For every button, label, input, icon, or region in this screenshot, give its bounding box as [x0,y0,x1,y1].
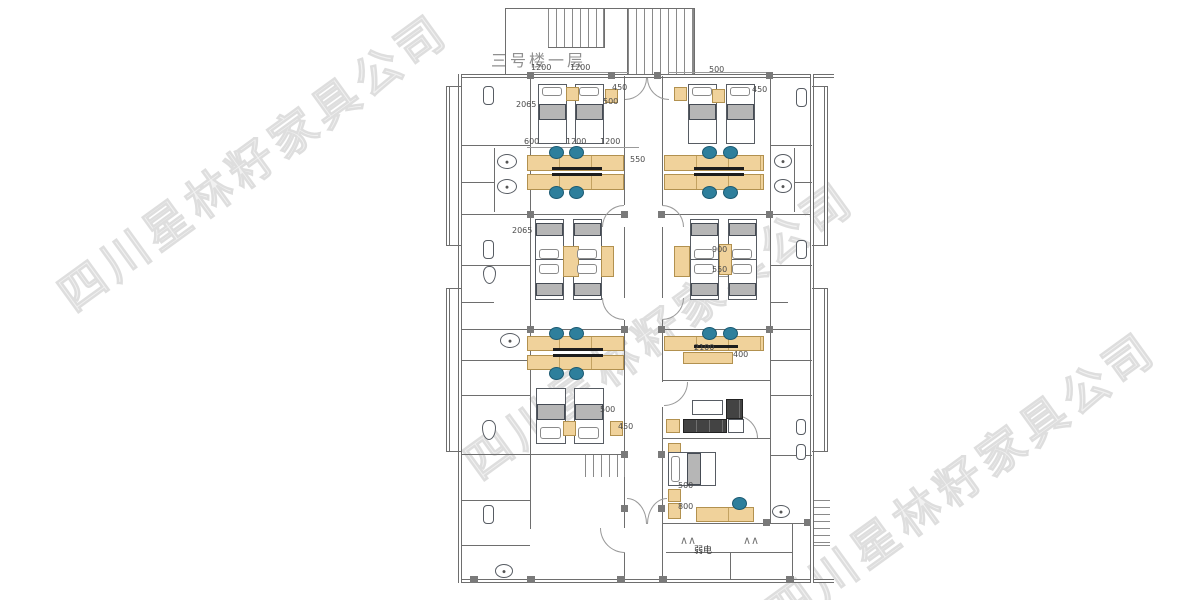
plan-wall-h [462,545,530,546]
plan-pillow [542,87,562,96]
plan-wall-v [730,552,731,580]
plan-dwall-v [446,86,450,246]
plan-band [729,223,756,236]
plan-pillow [732,264,752,274]
plan-band [536,283,563,296]
plan-chair [569,146,584,159]
dim-label: 800 [678,503,693,511]
plan-col [766,72,773,79]
vent-symbol: ∧∧ [743,535,759,546]
plan-cab [674,87,687,101]
plan-wall-h [812,451,828,452]
plan-sink [772,505,790,518]
dim-label: 500 [709,66,724,74]
plan-col [658,211,665,218]
plan-arc-tr [600,528,625,553]
plan-mon [694,167,744,170]
dim-label: 450 [612,84,627,92]
plan-fixture [796,444,806,460]
dim-label: 900 [712,246,727,254]
floor-plan: 三号楼一层 四川星林籽家具公司四川星林籽家具公司四川星林籽家具公司1200120… [0,0,1200,600]
plan-mon [552,173,602,176]
dim-label: 500 [600,406,615,414]
plan-band [729,283,756,296]
plan-wall-h [662,214,810,215]
plan-wall-v [494,148,495,212]
dim-label: 1200 [570,64,590,72]
plan-band [537,404,565,420]
room-label-weak-current: 弱电 [694,547,712,556]
plan-fixture [796,419,806,435]
plan-wall-h [812,86,828,87]
plan-col [608,72,615,79]
plan-pillow [540,427,561,439]
plan-sink [774,179,792,193]
plan-sofa [683,419,727,433]
plan-wall-v [794,148,795,212]
vent-symbol: ∧∧ [680,535,696,546]
plan-wall-v [792,523,793,580]
plan-band [691,223,718,236]
plan-wall-v [662,407,663,580]
plan-stairs-v [548,9,604,47]
plan-wall-h [662,438,770,439]
dim-label: 450 [752,86,767,94]
plan-chair [549,146,564,159]
plan-col [804,519,811,526]
plan-arc-tl [625,78,647,100]
plan-col [659,576,667,583]
plan-dwall-v [824,86,828,246]
floor-plan-canvas: 三号楼一层 四川星林籽家具公司四川星林籽家具公司四川星林籽家具公司1200120… [0,0,1200,600]
plan-sink [500,333,520,348]
plan-wall-h [666,552,792,553]
plan-cab [563,421,576,436]
plan-table-w [692,400,723,415]
plan-col [766,326,773,333]
plan-wall-v [694,8,695,76]
plan-arc-tr [647,78,669,100]
plan-stairs-v [628,9,694,75]
plan-band [575,404,603,420]
plan-sink [497,179,517,194]
plan-wall-h [770,360,812,361]
plan-col [621,451,628,458]
plan-dwall-v [446,288,450,452]
plan-band [689,104,716,120]
plan-wall-h [770,395,812,396]
plan-wall-h [446,451,462,452]
plan-pillow [671,456,680,482]
plan-col [527,576,535,583]
plan-chair [702,146,717,159]
plan-band [727,104,754,120]
plan-wall-h [446,245,462,246]
plan-band [574,283,601,296]
plan-chair [723,146,738,159]
plan-pillow [539,249,559,259]
plan-wall-h [462,500,530,501]
dim-label: 500 [678,482,693,490]
plan-cab [566,87,579,101]
plan-col [766,211,773,218]
plan-arc-bl [627,498,647,524]
plan-cab [712,89,725,103]
dim-label: 500 [603,98,618,106]
plan-pillow [692,87,712,96]
plan-wall-h [462,145,530,146]
plan-pillow [730,87,750,96]
plan-col [763,519,770,526]
plan-fixture [483,240,494,259]
plan-wall-h [770,145,812,146]
plan-wall-h [462,360,530,361]
plan-mon [553,354,603,357]
plan-pillow [694,249,714,259]
plan-chair [702,327,717,340]
plan-wall-h [446,86,462,87]
plan-wall-h [662,523,810,524]
dim-label: 1200 [600,138,620,146]
plan-wall-v [530,454,531,529]
dim-label: 2100 [694,344,714,352]
plan-pillow [579,87,599,96]
plan-fixture [483,86,494,105]
plan-chair [569,327,584,340]
plan-wall-h [662,380,770,381]
plan-chair [549,186,564,199]
plan-band [539,104,566,120]
dim-label: 400 [733,351,748,359]
plan-chair [732,497,747,510]
plan-sink [497,154,517,169]
dim-label: 550 [630,156,645,164]
plan-pillow [577,264,597,274]
plan-col [786,576,794,583]
plan-col [527,72,534,79]
plan-table-w [728,419,744,433]
plan-col [470,576,478,583]
plan-fixture [483,505,494,524]
plan-wall-h [462,265,530,266]
plan-wall-h [446,288,462,289]
plan-col [654,72,661,79]
plan-sink [774,154,792,168]
dim-label: 2065 [516,101,536,109]
plan-chair [549,367,564,380]
dim-label: 550 [712,266,727,274]
plan-col [658,451,665,458]
plan-cab [666,419,680,433]
plan-band [536,223,563,236]
dim-label: 1200 [566,138,586,146]
plan-wall-h [462,329,624,330]
plan-arc-tl [664,382,688,406]
plan-band [576,104,603,120]
plan-wall-v [530,214,531,454]
plan-chair [723,186,738,199]
plan-dwall-h [458,579,834,583]
plan-toilet [483,266,496,284]
plan-band [691,283,718,296]
plan-wall-h [812,245,828,246]
dim-label: 600 [524,138,539,146]
plan-wall-h [770,265,812,266]
dim-label: 1200 [531,64,551,72]
plan-wall-h [462,214,624,215]
plan-sofa [726,399,743,419]
plan-cab [674,246,690,277]
plan-cab [668,489,681,502]
plan-chair [549,327,564,340]
plan-wall-h [770,302,788,303]
plan-wall-h [462,182,494,183]
plan-wall-h [462,395,530,396]
plan-band [574,223,601,236]
plan-chair [569,186,584,199]
plan-col [621,211,628,218]
dim-label: 2065 [512,227,532,235]
plan-pillow [694,264,714,274]
plan-wall-v [770,438,771,523]
plan-wall-v [505,8,506,76]
plan-wall-h [812,288,828,289]
plan-fixture [796,240,807,259]
plan-mon [553,348,603,351]
plan-cab [683,352,733,364]
plan-arc-tr [602,298,624,320]
plan-mon [552,167,602,170]
plan-wall-v [662,227,663,298]
plan-cab [601,246,614,277]
plan-wall-h [794,182,812,183]
plan-stairs-h [814,500,830,546]
plan-wall-v [624,227,625,298]
plan-dline-h [527,147,639,148]
dim-label: 450 [618,423,633,431]
plan-fixture [796,88,807,107]
plan-col [527,211,534,218]
plan-sink [495,564,513,578]
plan-col [621,505,628,512]
plan-col [617,576,625,583]
plan-dwall-v [824,288,828,452]
plan-wall-v [627,8,628,76]
plan-stairs-v [585,455,625,477]
plan-mon [694,173,744,176]
plan-chair [569,367,584,380]
plan-wall-h [462,302,494,303]
plan-wall-v [770,214,771,454]
plan-col [658,505,665,512]
plan-col [658,326,665,333]
plan-chair [723,327,738,340]
plan-pillow [577,249,597,259]
plan-wall-v [604,8,605,48]
plan-pillow [732,249,752,259]
plan-col [621,326,628,333]
plan-pillow [539,264,559,274]
plan-chair [702,186,717,199]
plan-col [527,326,534,333]
watermark-text: 四川星林籽家具公司 [43,0,460,324]
plan-wall-h [548,47,605,48]
plan-desk [696,507,754,522]
plan-arc-bl [662,205,684,227]
plan-pillow [578,427,599,439]
